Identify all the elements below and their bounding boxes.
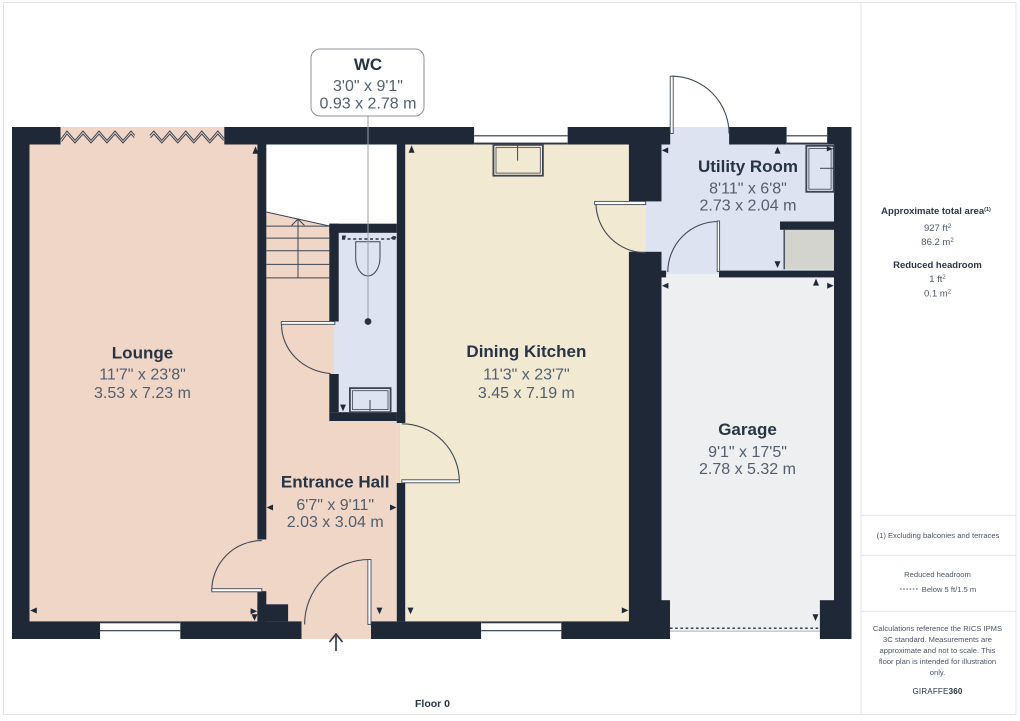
svg-text:(1) Excluding balconies and te: (1) Excluding balconies and terraces (877, 531, 1000, 540)
svg-text:approximate and not to scale.: approximate and not to scale. This (880, 646, 996, 655)
svg-text:3'0" x 9'1": 3'0" x 9'1" (333, 78, 403, 95)
svg-text:Reduced headroom: Reduced headroom (893, 260, 982, 271)
svg-text:floor plan is intended for ill: floor plan is intended for illustration (879, 657, 996, 666)
svg-text:3.53 x 7.23 m: 3.53 x 7.23 m (94, 385, 191, 402)
svg-text:9'1" x 17'5": 9'1" x 17'5" (708, 444, 787, 461)
svg-text:Utility Room: Utility Room (698, 157, 798, 176)
svg-text:0.1 m2: 0.1 m2 (924, 289, 952, 300)
svg-text:6'7" x 9'11": 6'7" x 9'11" (296, 497, 374, 514)
svg-text:Garage: Garage (718, 420, 777, 439)
svg-text:Lounge: Lounge (112, 344, 173, 363)
svg-text:2.73 x 2.04 m: 2.73 x 2.04 m (700, 198, 797, 215)
svg-text:927 ft2: 927 ft2 (924, 223, 952, 234)
svg-text:11'7" x 23'8": 11'7" x 23'8" (99, 367, 186, 384)
svg-text:2.03 x 3.04 m: 2.03 x 3.04 m (287, 514, 384, 531)
svg-text:86.2 m2: 86.2 m2 (921, 237, 954, 248)
svg-text:3C standard. Measurements are: 3C standard. Measurements are (883, 635, 992, 644)
svg-text:8'11" x 6'8": 8'11" x 6'8" (709, 180, 787, 197)
svg-text:Entrance Hall: Entrance Hall (281, 473, 390, 492)
svg-text:11'3" x 23'7": 11'3" x 23'7" (483, 367, 570, 384)
svg-text:only.: only. (930, 668, 945, 677)
svg-text:WC: WC (354, 55, 382, 74)
svg-text:Reduced headroom: Reduced headroom (904, 570, 971, 579)
svg-text:2.78 x 5.32 m: 2.78 x 5.32 m (699, 461, 796, 478)
svg-text:0.93 x 2.78 m: 0.93 x 2.78 m (320, 96, 417, 113)
svg-text:Approximate total area(1): Approximate total area(1) (881, 206, 991, 217)
svg-text:Dining Kitchen: Dining Kitchen (466, 342, 586, 361)
svg-text:Below 5 ft/1.5 m: Below 5 ft/1.5 m (922, 585, 976, 594)
svg-text:Floor 0: Floor 0 (415, 698, 450, 710)
svg-text:GIRAFFE360: GIRAFFE360 (912, 687, 962, 696)
svg-text:Calculations reference the RIC: Calculations reference the RICS IPMS (873, 624, 1002, 633)
svg-text:3.45 x 7.19 m: 3.45 x 7.19 m (478, 385, 575, 402)
